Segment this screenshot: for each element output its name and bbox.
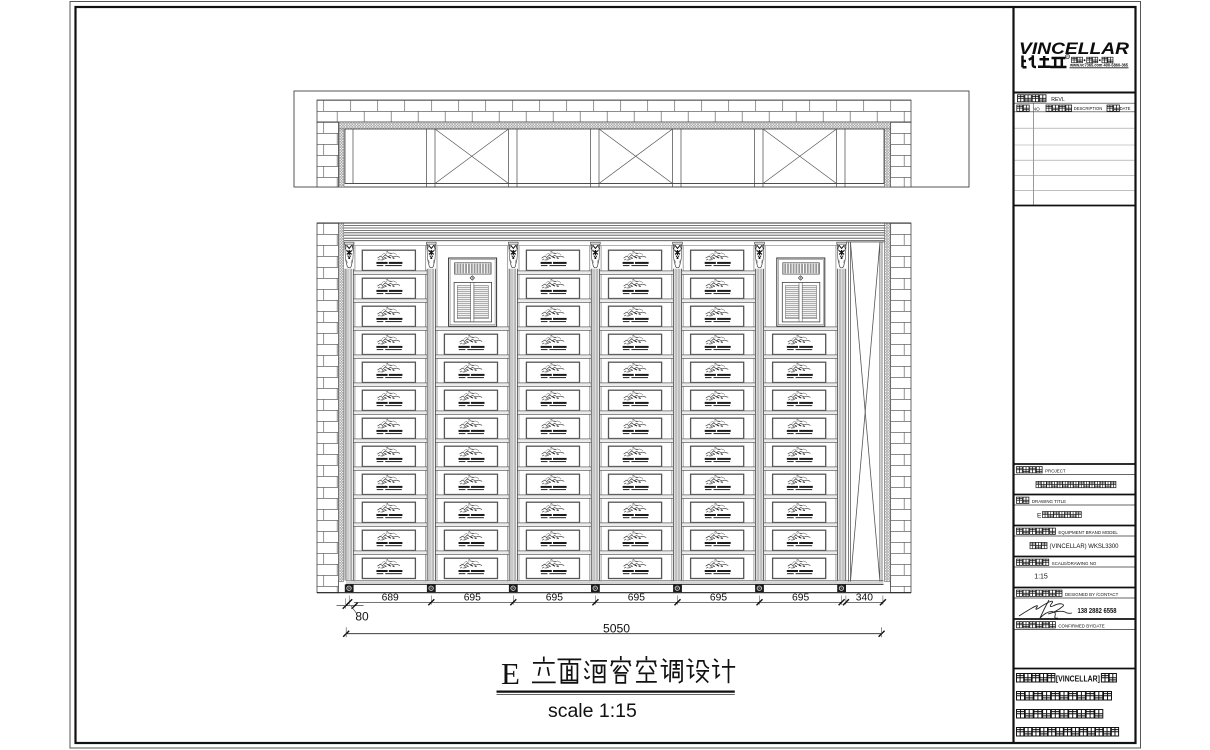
svg-text:5050: 5050	[603, 621, 630, 635]
svg-text:689: 689	[382, 593, 399, 604]
svg-text:138 2882 6558: 138 2882 6558	[1078, 606, 1117, 615]
svg-text:scale 1:15: scale 1:15	[548, 700, 637, 722]
svg-text:DATE: DATE	[1120, 106, 1131, 111]
svg-text:695: 695	[546, 593, 563, 604]
svg-text:(VINCELLAR) WKSL3300: (VINCELLAR) WKSL3300	[1050, 543, 1120, 550]
svg-text:CONFIRMED BY/DATE: CONFIRMED BY/DATE	[1058, 623, 1104, 628]
svg-text:[VINCELLAR]: [VINCELLAR]	[1056, 674, 1100, 683]
svg-text:695: 695	[792, 593, 809, 604]
svg-text:695: 695	[710, 593, 727, 604]
svg-text:VINCELLAR: VINCELLAR	[1019, 40, 1129, 58]
svg-text:DRAWING TITLE: DRAWING TITLE	[1032, 499, 1066, 504]
svg-text:REVL: REVL	[1051, 97, 1065, 103]
svg-text:695: 695	[464, 593, 481, 604]
svg-text:SCALE/DRAWING NO: SCALE/DRAWING NO	[1052, 561, 1097, 566]
svg-text:E: E	[501, 656, 520, 691]
svg-text:DESCRIPTION: DESCRIPTION	[1074, 106, 1103, 111]
svg-text:695: 695	[628, 593, 645, 604]
svg-text:DESIGNED BY /CONTACT: DESIGNED BY /CONTACT	[1065, 592, 1119, 597]
svg-text:E: E	[1037, 512, 1042, 519]
svg-text:340: 340	[856, 593, 873, 604]
svg-text:EQUIPMENT BRAND MODEL: EQUIPMENT BRAND MODEL	[1058, 530, 1118, 535]
svg-text:1:15: 1:15	[1034, 574, 1048, 581]
svg-text:80: 80	[355, 609, 369, 623]
svg-text:PROJECT: PROJECT	[1045, 468, 1066, 473]
svg-text:NO: NO	[1033, 107, 1040, 112]
